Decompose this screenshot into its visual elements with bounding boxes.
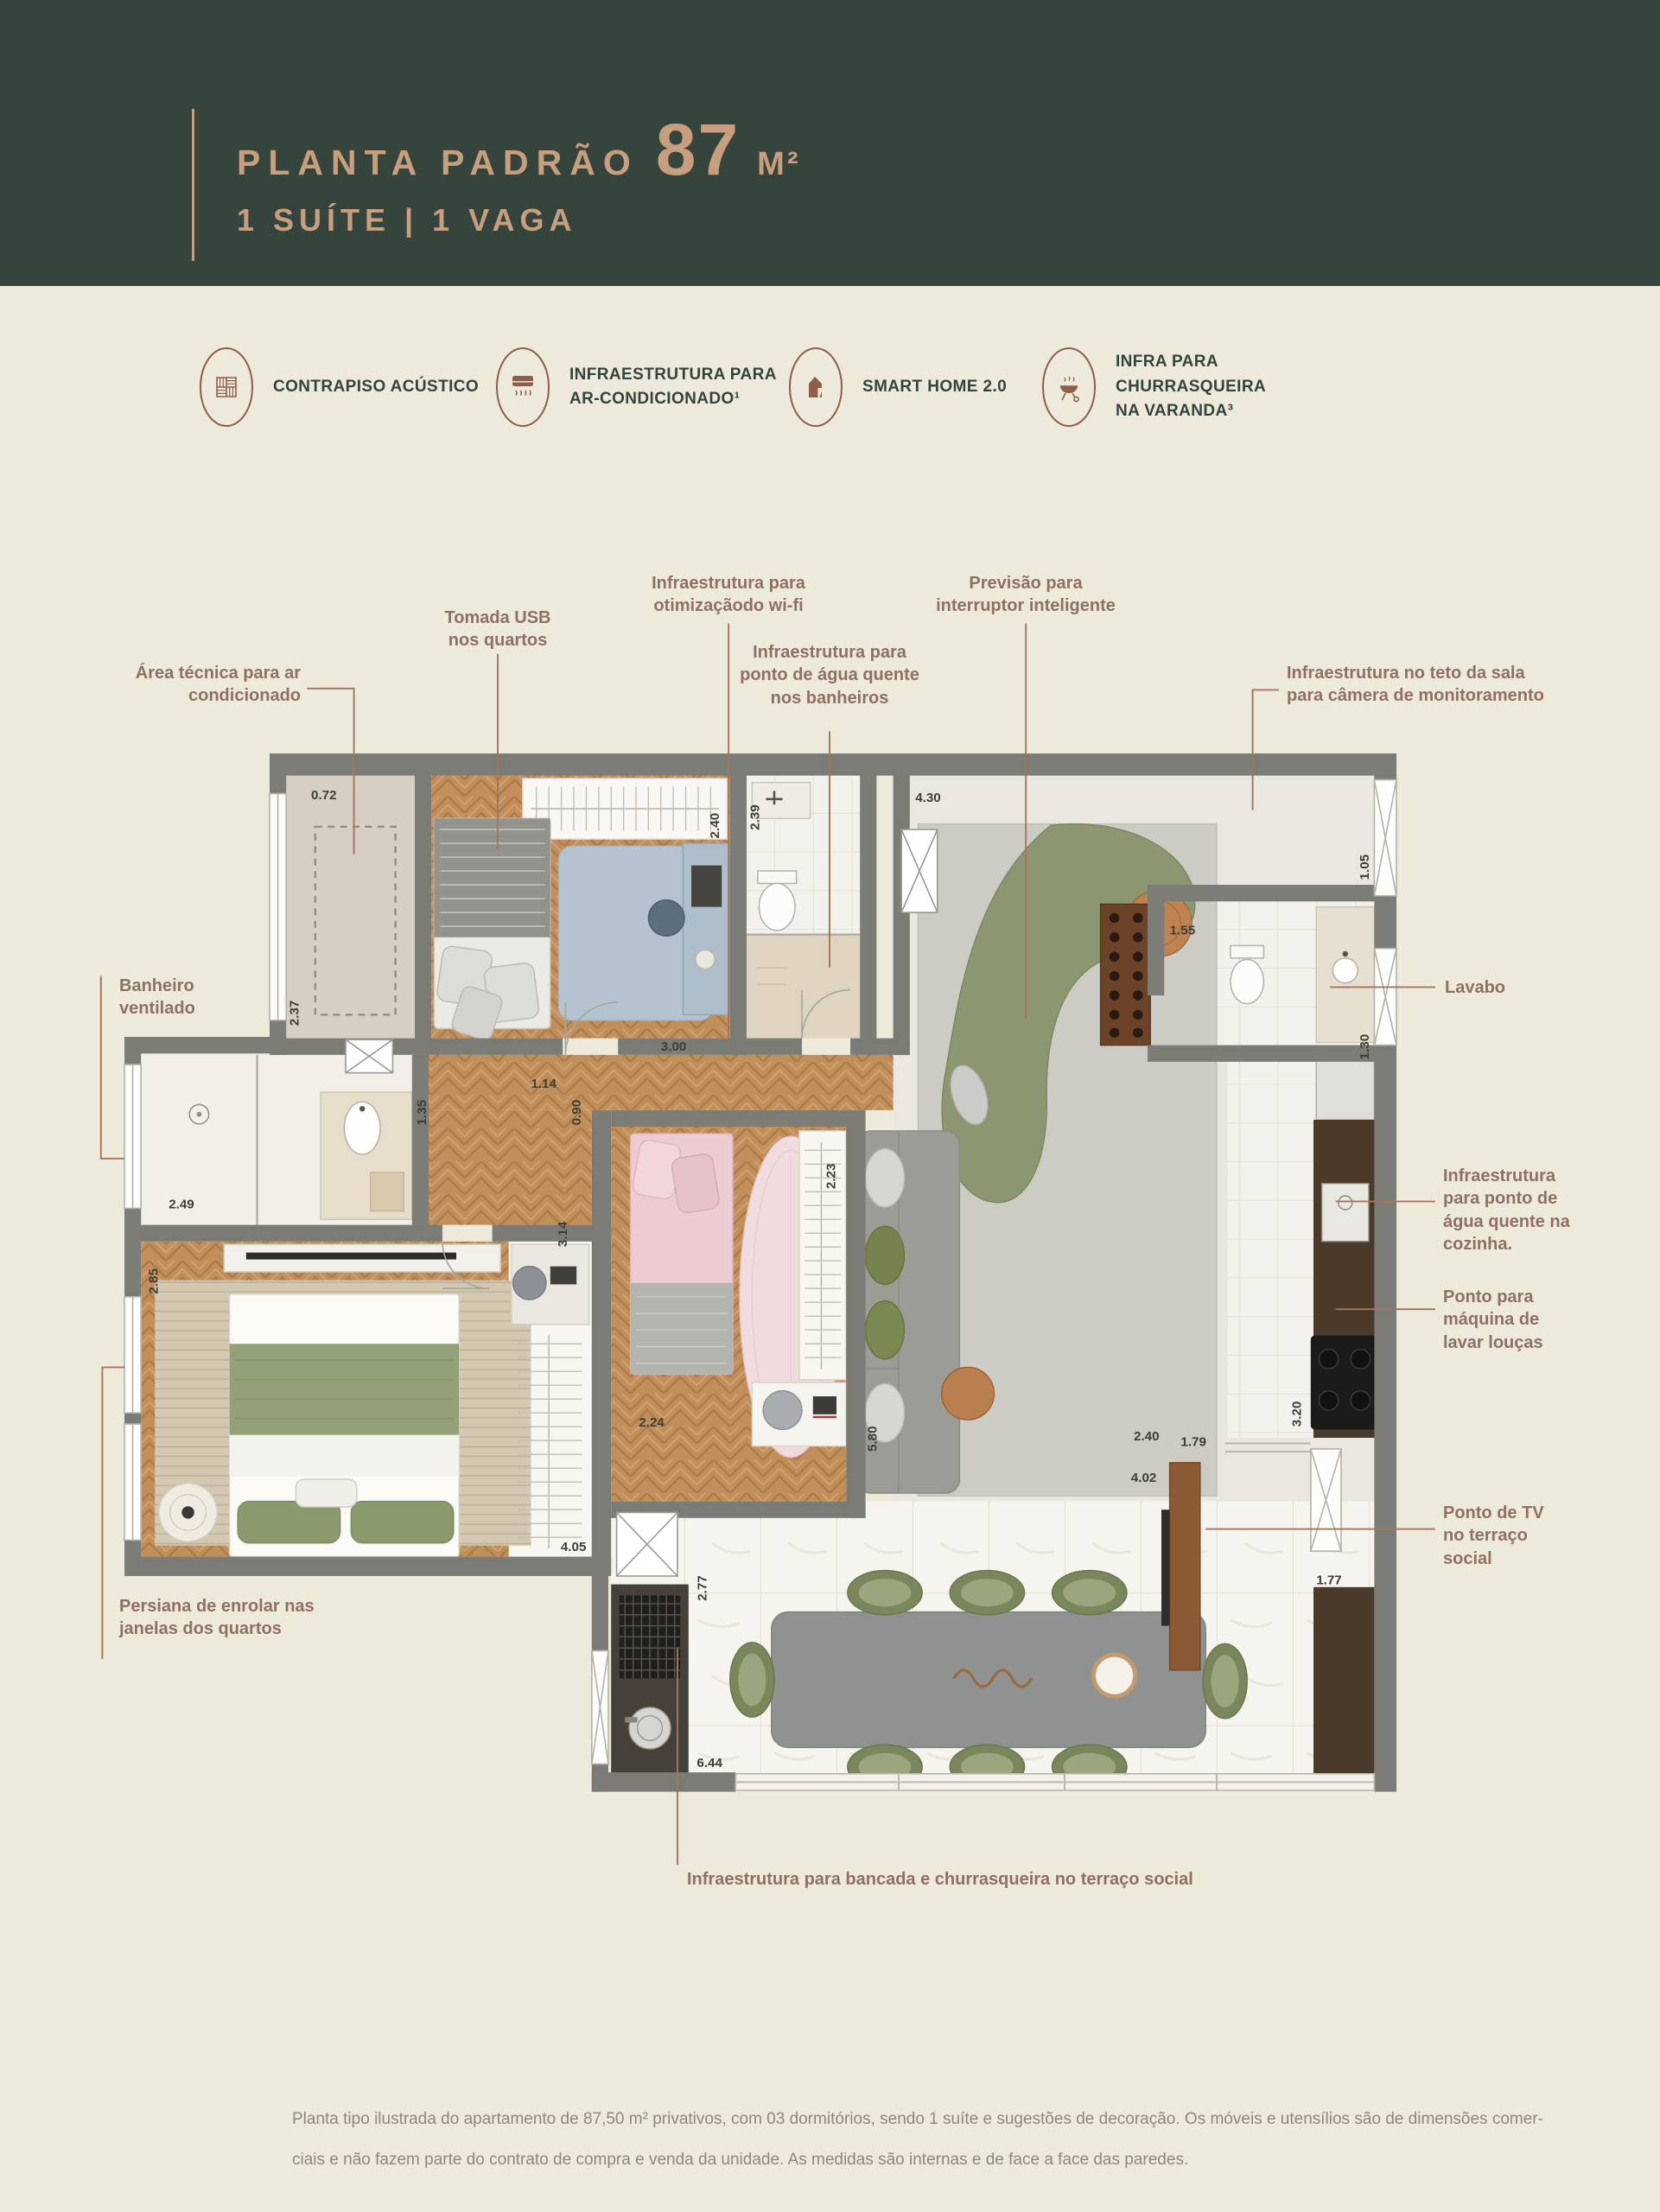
svg-text:2.85: 2.85 — [146, 1268, 161, 1294]
callout-persiana: Persiana de enrolar nas janelas dos quar… — [119, 1595, 396, 1641]
callout-interruptor: Previsão para interruptor inteligente — [887, 572, 1164, 618]
cooktop — [1311, 1336, 1377, 1430]
callout-area-tecnica: Área técnica para ar condicionado — [88, 662, 301, 708]
callout-bancada: Infraestrutura para bancada e churrasque… — [687, 1868, 1361, 1891]
coffee-table — [942, 1367, 995, 1420]
svg-text:4.02: 4.02 — [1131, 1471, 1157, 1485]
svg-text:1.14: 1.14 — [531, 1077, 557, 1091]
callout-ponto-tv: Ponto de TV no terraço social — [1443, 1502, 1650, 1570]
tv-panel — [1170, 1463, 1200, 1670]
callout-agua-banheiros: Infraestrutura para ponto de água quente… — [691, 641, 968, 709]
callout-maquina-loucas: Ponto para máquina de lavar louças — [1443, 1286, 1650, 1354]
svg-text:3.00: 3.00 — [661, 1039, 687, 1054]
shower — [747, 935, 860, 1039]
svg-text:3.14: 3.14 — [556, 1221, 570, 1247]
terrace-sink — [629, 1707, 671, 1749]
svg-text:1.79: 1.79 — [1180, 1435, 1206, 1450]
svg-text:2.49: 2.49 — [169, 1197, 194, 1211]
sliding-glass-doors — [735, 1774, 1374, 1790]
terrace-cabinet — [1313, 1587, 1374, 1776]
callout-wifi: Infraestrutura para otimizaçãodo wi-fi — [590, 572, 867, 618]
svg-text:2.24: 2.24 — [639, 1415, 665, 1430]
svg-text:0.90: 0.90 — [569, 1100, 584, 1126]
svg-text:1.35: 1.35 — [415, 1099, 429, 1125]
terrace-tv — [1161, 1510, 1170, 1625]
toilet — [759, 883, 795, 930]
callout-agua-cozinha: Infraestrutura para ponto de água quente… — [1443, 1165, 1650, 1256]
kitchen-sink — [1322, 1184, 1369, 1242]
svg-text:0.72: 0.72 — [311, 788, 337, 803]
desk-chair — [648, 900, 684, 937]
svg-text:6.44: 6.44 — [696, 1756, 722, 1770]
svg-text:2.40: 2.40 — [708, 813, 722, 839]
fridge — [1316, 1056, 1374, 1120]
callout-banheiro-ventilado: Banheiro ventilado — [119, 975, 292, 1020]
svg-text:2.23: 2.23 — [824, 1163, 838, 1189]
wardrobe — [799, 1131, 846, 1380]
svg-text:4.30: 4.30 — [915, 791, 941, 805]
svg-text:2.40: 2.40 — [1134, 1429, 1160, 1444]
svg-text:5.80: 5.80 — [865, 1426, 880, 1452]
disclaimer-text: Planta tipo ilustrada do apartamento de … — [292, 2100, 1649, 2180]
wine-rack — [1101, 904, 1151, 1045]
hall-floor — [429, 1055, 894, 1110]
svg-text:1.30: 1.30 — [1358, 1034, 1372, 1060]
svg-text:1.77: 1.77 — [1316, 1573, 1342, 1588]
svg-text:1.05: 1.05 — [1358, 854, 1372, 880]
bedroom1-furniture — [434, 779, 729, 1042]
svg-text:4.05: 4.05 — [561, 1540, 587, 1554]
tv — [246, 1253, 456, 1260]
toilet — [1231, 959, 1263, 1003]
svg-text:2.77: 2.77 — [696, 1575, 710, 1601]
svg-text:2.39: 2.39 — [747, 804, 762, 830]
svg-text:3.20: 3.20 — [1290, 1402, 1305, 1427]
bowl — [1094, 1655, 1135, 1696]
dining-table — [772, 1612, 1205, 1748]
suite-furniture — [155, 1244, 588, 1557]
chair — [763, 1391, 802, 1430]
callout-camera: Infraestrutura no teto da sala para câme… — [1287, 662, 1615, 708]
callout-lavabo: Lavabo — [1445, 976, 1583, 999]
svg-text:1.55: 1.55 — [1170, 924, 1196, 938]
callout-tomada-usb: Tomada USB nos quartos — [394, 607, 601, 652]
brochure-page: PLANTA PADRÃO 87 M² 1 SUÍTE | 1 VAGA CON… — [0, 0, 1660, 2212]
